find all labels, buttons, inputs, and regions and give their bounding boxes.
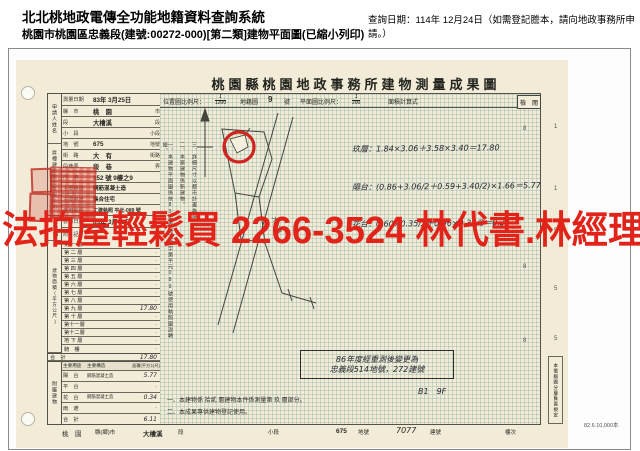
footer-section: 大檜溪 xyxy=(143,428,163,438)
attached-area: · xyxy=(121,384,161,390)
floor-label: 第 四 層 xyxy=(62,265,98,272)
footer-building-number: 7077 xyxy=(396,426,416,435)
floor-row: 第 五 層· xyxy=(62,273,161,281)
edge-number: 1 xyxy=(554,186,557,192)
form-row-small-section: 小 段小段 xyxy=(62,128,161,139)
footer-county: 桃 園 xyxy=(62,428,82,438)
edge-number: 5 xyxy=(554,396,557,402)
punch-hole-bottom xyxy=(21,412,35,426)
floor-value: · xyxy=(98,282,161,288)
floor-value: 17.80 xyxy=(98,305,161,312)
attached-header-area: 面積(平方公尺) xyxy=(121,363,161,369)
attached-header-use: 主要用途 xyxy=(62,363,87,369)
floor-row: 第 六 層· xyxy=(62,281,161,289)
floor-value: · xyxy=(98,322,161,328)
plan-scale-label: 平面圖比例尺： xyxy=(300,97,342,106)
floor-area-label: 建物面積(平方公尺) xyxy=(52,268,58,325)
map-edge-number: 8 xyxy=(523,338,526,344)
floor-row: 地 下 層· xyxy=(62,337,161,345)
field-value: 大檜溪 xyxy=(93,118,147,127)
attached-area: 5.77 xyxy=(121,372,161,379)
print-run-info: 82.6.10,000本 xyxy=(584,421,619,429)
bottom-note-1: 一、本建物係 拾貳 層建物本件係測量第 玖 層部分。 xyxy=(167,395,306,404)
floor-total-row: 合 計 17.80 xyxy=(48,353,161,361)
attached-structure: 鋼筋混凝土造 xyxy=(87,394,121,400)
attached-use: 雨 遮 xyxy=(62,405,87,412)
remeasure-note-box: 86年度經重測後變更為 忠義段514地號，272建號 xyxy=(300,350,454,379)
floor-label: 第十一層 xyxy=(62,321,98,328)
footer-floor-suffix: 樓次 xyxy=(505,428,516,436)
field-suffix: 地號 xyxy=(147,141,161,148)
floor-label: 騎 樓 xyxy=(62,346,98,353)
document-subtitle: 桃園市桃園區忠義段(建號:00272-000)[第二類]建物平面圖(已縮小列印) xyxy=(22,26,364,42)
fraction-denominator: 1200 xyxy=(215,100,226,106)
floor-label: 第 三 層 xyxy=(62,257,98,264)
building-mark xyxy=(230,135,248,153)
calc-line-ninth-floor: 玖層：1.84×3.06＋3.58×3.40＝17.80 xyxy=(352,142,500,155)
footer-parcel-suffix: 地號 xyxy=(358,428,369,436)
remeasure-line2: 忠義段514地號，272建號 xyxy=(330,365,425,374)
field-suffix: 小段 xyxy=(147,130,161,137)
form-row-county: 縣 市桃 園市 xyxy=(62,106,161,117)
authority-note: 本電腦圖分層負責規定 xyxy=(553,363,558,418)
footer-parcel-number: 675 xyxy=(336,428,347,435)
cadastral-sheet-unit: 號 xyxy=(284,97,290,106)
form-row-parcel: 地 號675地號 xyxy=(62,139,161,150)
floor-value: · xyxy=(98,314,161,320)
floor-value: · xyxy=(98,266,161,272)
floor-label: 第 七 層 xyxy=(62,289,98,296)
applicant-label: 申請人姓名 xyxy=(51,104,58,134)
floor-label: 第 十 層 xyxy=(62,313,98,320)
form-row-section: 段大檜溪段 xyxy=(62,117,161,128)
field-suffix: 弄 xyxy=(147,163,161,170)
punch-hole-top xyxy=(21,86,35,100)
system-title: 北北桃地政電傳全功能地籍資料查詢系統 xyxy=(22,6,265,26)
field-suffix: 街路 xyxy=(147,152,161,159)
floor-row: 第 三 層· xyxy=(62,257,161,265)
field-suffix: 市 xyxy=(147,108,161,115)
edge-number: 5 xyxy=(554,286,557,292)
floor-value: · xyxy=(98,290,161,296)
basement-floor-mark: B1 9F xyxy=(418,386,446,397)
attached-area: 6.11 xyxy=(121,416,161,423)
attached-use: 陽 台 xyxy=(62,372,87,379)
floor-row: 第 四 層· xyxy=(62,265,161,273)
field-value: 桃 園 xyxy=(93,107,147,116)
floor-row: 第 七 層· xyxy=(62,289,161,297)
attached-row-flower-stand: 花 台鋼筋混凝土造0.34 xyxy=(62,393,161,404)
review-label: 檢 閱 xyxy=(520,98,538,107)
footer-section-suffix: 段 xyxy=(178,428,184,436)
survey-form-table: 申請人姓名 昇樺建設股份有限公司 吳玲娟 測量日期83年 3月25日 縣 市桃 … xyxy=(47,93,162,425)
attached-header-row: 主要用途 主要構造 面積(平方公尺) xyxy=(62,362,161,371)
scale-header-row: 位置圖比例尺： 11200 地籍圖 9 號 平面圖比例尺： 1200 面積計算式 xyxy=(160,94,540,108)
red-watermark-text: 法拍屋輕鬆買 2266-3524 林代書.林經理 xyxy=(2,199,616,254)
floor-value: · xyxy=(98,298,161,304)
field-label: 街 路 xyxy=(62,152,93,159)
floor-value: · xyxy=(98,346,161,352)
floor-label: 地 下 層 xyxy=(62,337,98,344)
attached-structure: 鋼筋混凝土造 xyxy=(87,373,121,379)
bottom-note-2: 二、本成果專供建物登記使用。 xyxy=(167,407,251,416)
attached-row-total: 合 計6.11 xyxy=(62,414,161,425)
floor-row: 第十一層· xyxy=(62,321,161,329)
floor-row-ninth: 第 九 層17.80 xyxy=(62,305,161,313)
attached-use: 合 計 xyxy=(62,416,87,423)
field-value: 鋼筋混凝土造 xyxy=(93,184,147,192)
field-label: 測量日期 xyxy=(62,96,93,103)
floor-label: 第 八 層 xyxy=(62,297,98,304)
field-value: 675 xyxy=(93,141,147,148)
survey-map-title: 桃園縣桃園地政事務所建物測量成果圖 xyxy=(186,74,526,93)
field-value: 段 巷 xyxy=(93,162,147,171)
floor-value: · xyxy=(98,330,161,336)
form-row-street: 街 路大 有街路 xyxy=(62,150,161,161)
edge-number: 5 xyxy=(554,336,557,342)
remeasure-line1: 86年度經重測後變更為 xyxy=(336,355,418,364)
floor-row: 第十二層· xyxy=(62,329,161,337)
attached-row-platform: 平 台· xyxy=(62,382,161,393)
floor-value: · xyxy=(98,338,161,344)
floor-total-label: 合 計 xyxy=(48,354,90,361)
field-label: 小 段 xyxy=(62,130,93,137)
cadastral-sheet-number: 9 xyxy=(268,95,272,104)
attached-area: 0.34 xyxy=(121,394,161,401)
north-arrow-head xyxy=(201,109,209,121)
attached-row-balcony: 陽 台鋼筋混凝土造5.77 xyxy=(62,371,161,382)
attached-label-cell: 附屬建物 xyxy=(48,361,62,424)
footer-building-suffix: 建號 xyxy=(430,428,441,436)
plan-scale-fraction: 1200 xyxy=(352,95,360,106)
field-value: 83年 3月25日 xyxy=(93,95,147,104)
attached-label: 附屬建物 xyxy=(51,381,58,405)
query-date: 查詢日期：114年 12月24日（如需登記謄本，請向地政事務所申請。） xyxy=(368,12,640,40)
field-label: 段 xyxy=(62,119,93,126)
field-label: 縣 市 xyxy=(62,108,93,115)
floor-label: 第 六 層 xyxy=(62,281,98,288)
calc-line-balcony: 陽台：(0.86+3.06∕2＋0.59+3.40∕2)×1.66＝5.77 xyxy=(352,180,541,193)
field-label: 地 號 xyxy=(62,141,93,148)
footer-small-section: 小段 xyxy=(268,428,279,436)
authority-note-box: 本電腦圖分層負責規定 xyxy=(548,356,563,424)
applicant-label-cell: 申請人姓名 xyxy=(48,94,62,144)
location-scale-fraction: 11200 xyxy=(215,95,226,106)
attached-row-canopy: 雨 遮· xyxy=(62,403,161,414)
location-scale-label: 位置圖比例尺： xyxy=(163,97,205,106)
field-value: 152 號 9樓之9 xyxy=(93,173,147,182)
floor-value: · xyxy=(98,274,161,280)
floor-total-value: 17.80 xyxy=(90,354,161,361)
floor-label: 第 九 層 xyxy=(62,305,98,312)
review-box: 檢 閱 xyxy=(517,95,541,109)
floor-row: 騎 樓· xyxy=(62,345,161,353)
edge-number: 1 xyxy=(554,124,557,130)
map-edge-number: 8 xyxy=(523,126,526,132)
floor-value: · xyxy=(98,258,161,264)
map-edge-number: 8 xyxy=(523,264,526,270)
attached-header-structure: 主要構造 xyxy=(87,363,121,369)
floor-row: 第 八 層· xyxy=(62,297,161,305)
fraction-denominator: 200 xyxy=(352,100,360,106)
form-row-survey-date: 測量日期83年 3月25日 xyxy=(62,94,161,106)
footer-county-suffix: 縣(鄉)市 xyxy=(95,428,115,436)
floor-area-label-cell: 建物面積(平方公尺) xyxy=(48,241,62,353)
attached-use: 平 台 xyxy=(62,383,87,390)
field-value: 大 有 xyxy=(93,151,147,160)
cadastral-sheet-label: 地籍圖 xyxy=(240,97,258,106)
query-result-page: 北北桃地政電傳全功能地籍資料查詢系統 查詢日期：114年 12月24日（如需登記… xyxy=(0,0,640,451)
floor-row: 第 十 層· xyxy=(62,313,161,321)
field-suffix: 段 xyxy=(147,119,161,126)
attached-use: 花 台 xyxy=(62,394,87,401)
attached-area: · xyxy=(121,405,161,411)
floor-label: 第 五 層 xyxy=(62,273,98,280)
area-calc-label: 面積計算式 xyxy=(388,97,418,106)
floor-label: 第十二層 xyxy=(62,329,98,336)
